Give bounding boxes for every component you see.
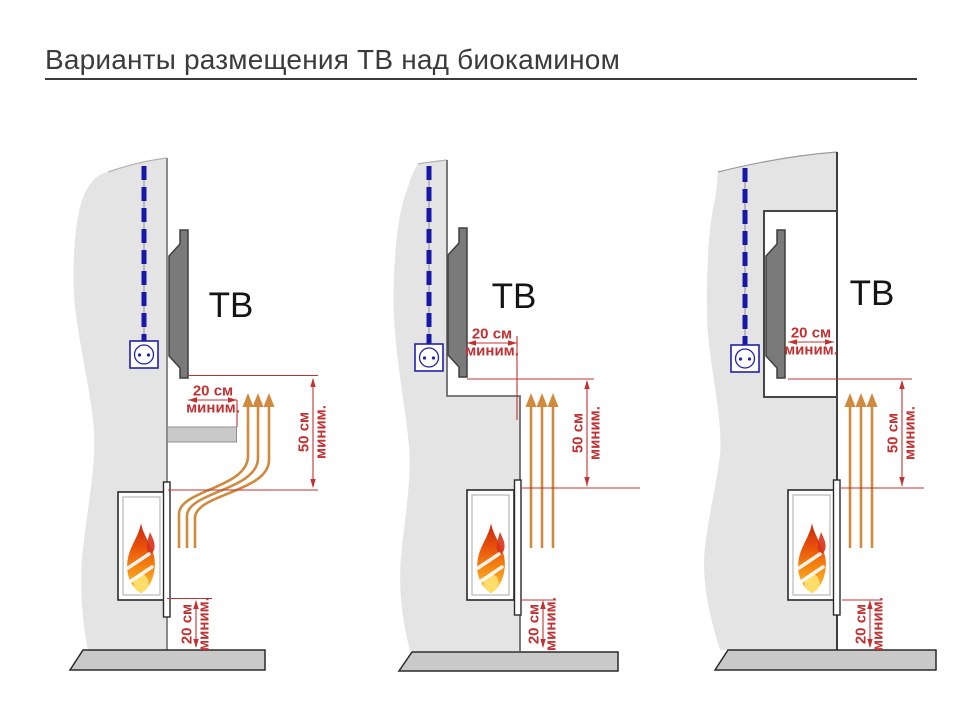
heat-arrowheads	[526, 393, 559, 407]
fireplace-glass-front	[164, 482, 171, 617]
tv-label: ТВ	[209, 286, 254, 326]
dim-label-vertical-gap: 50 см миним.	[571, 406, 604, 460]
tv-label: ТВ	[492, 277, 537, 317]
dim-label-tv-clearance: 20 см миним.	[186, 384, 240, 417]
title-underline	[45, 78, 917, 80]
power-outlet-icon	[731, 345, 759, 372]
fireplace-firebox	[467, 480, 521, 615]
tv-label: ТВ	[850, 274, 895, 314]
heat-flow-arrows	[850, 406, 872, 548]
dim-label-floor-gap: 20 см миним.	[854, 597, 887, 651]
dim-label-floor-gap: 20 см миним.	[180, 597, 213, 651]
heat-arrowheads	[243, 393, 275, 407]
protective-ledge	[168, 427, 237, 442]
floor-slab	[399, 652, 618, 671]
heat-arrowheads	[845, 393, 878, 407]
power-outlet-icon	[130, 341, 158, 368]
fireplace-glass-front	[834, 480, 841, 615]
floor-slab	[70, 650, 265, 670]
floor-slab	[715, 650, 936, 670]
power-outlet-icon	[415, 344, 443, 371]
heat-flow-arrows	[531, 406, 553, 548]
fireplace-firebox	[118, 482, 170, 617]
infographic-canvas: Варианты размещения ТВ над биокамином	[0, 0, 970, 728]
diagram-graphics	[0, 0, 970, 728]
page-title: Варианты размещения ТВ над биокамином	[45, 44, 620, 76]
tv-side-profile	[169, 230, 188, 378]
dim-label-vertical-gap: 50 см миним.	[886, 406, 919, 460]
tv-side-profile	[766, 230, 785, 378]
fireplace-firebox	[788, 480, 840, 615]
dim-label-tv-clearance: 20 см миним.	[784, 326, 838, 359]
dim-label-tv-clearance: 20 см миним.	[465, 327, 519, 360]
dim-label-vertical-gap: 50 см миним.	[297, 405, 330, 459]
fireplace-glass-front	[515, 480, 522, 615]
dim-label-floor-gap: 20 см миним.	[527, 597, 560, 651]
